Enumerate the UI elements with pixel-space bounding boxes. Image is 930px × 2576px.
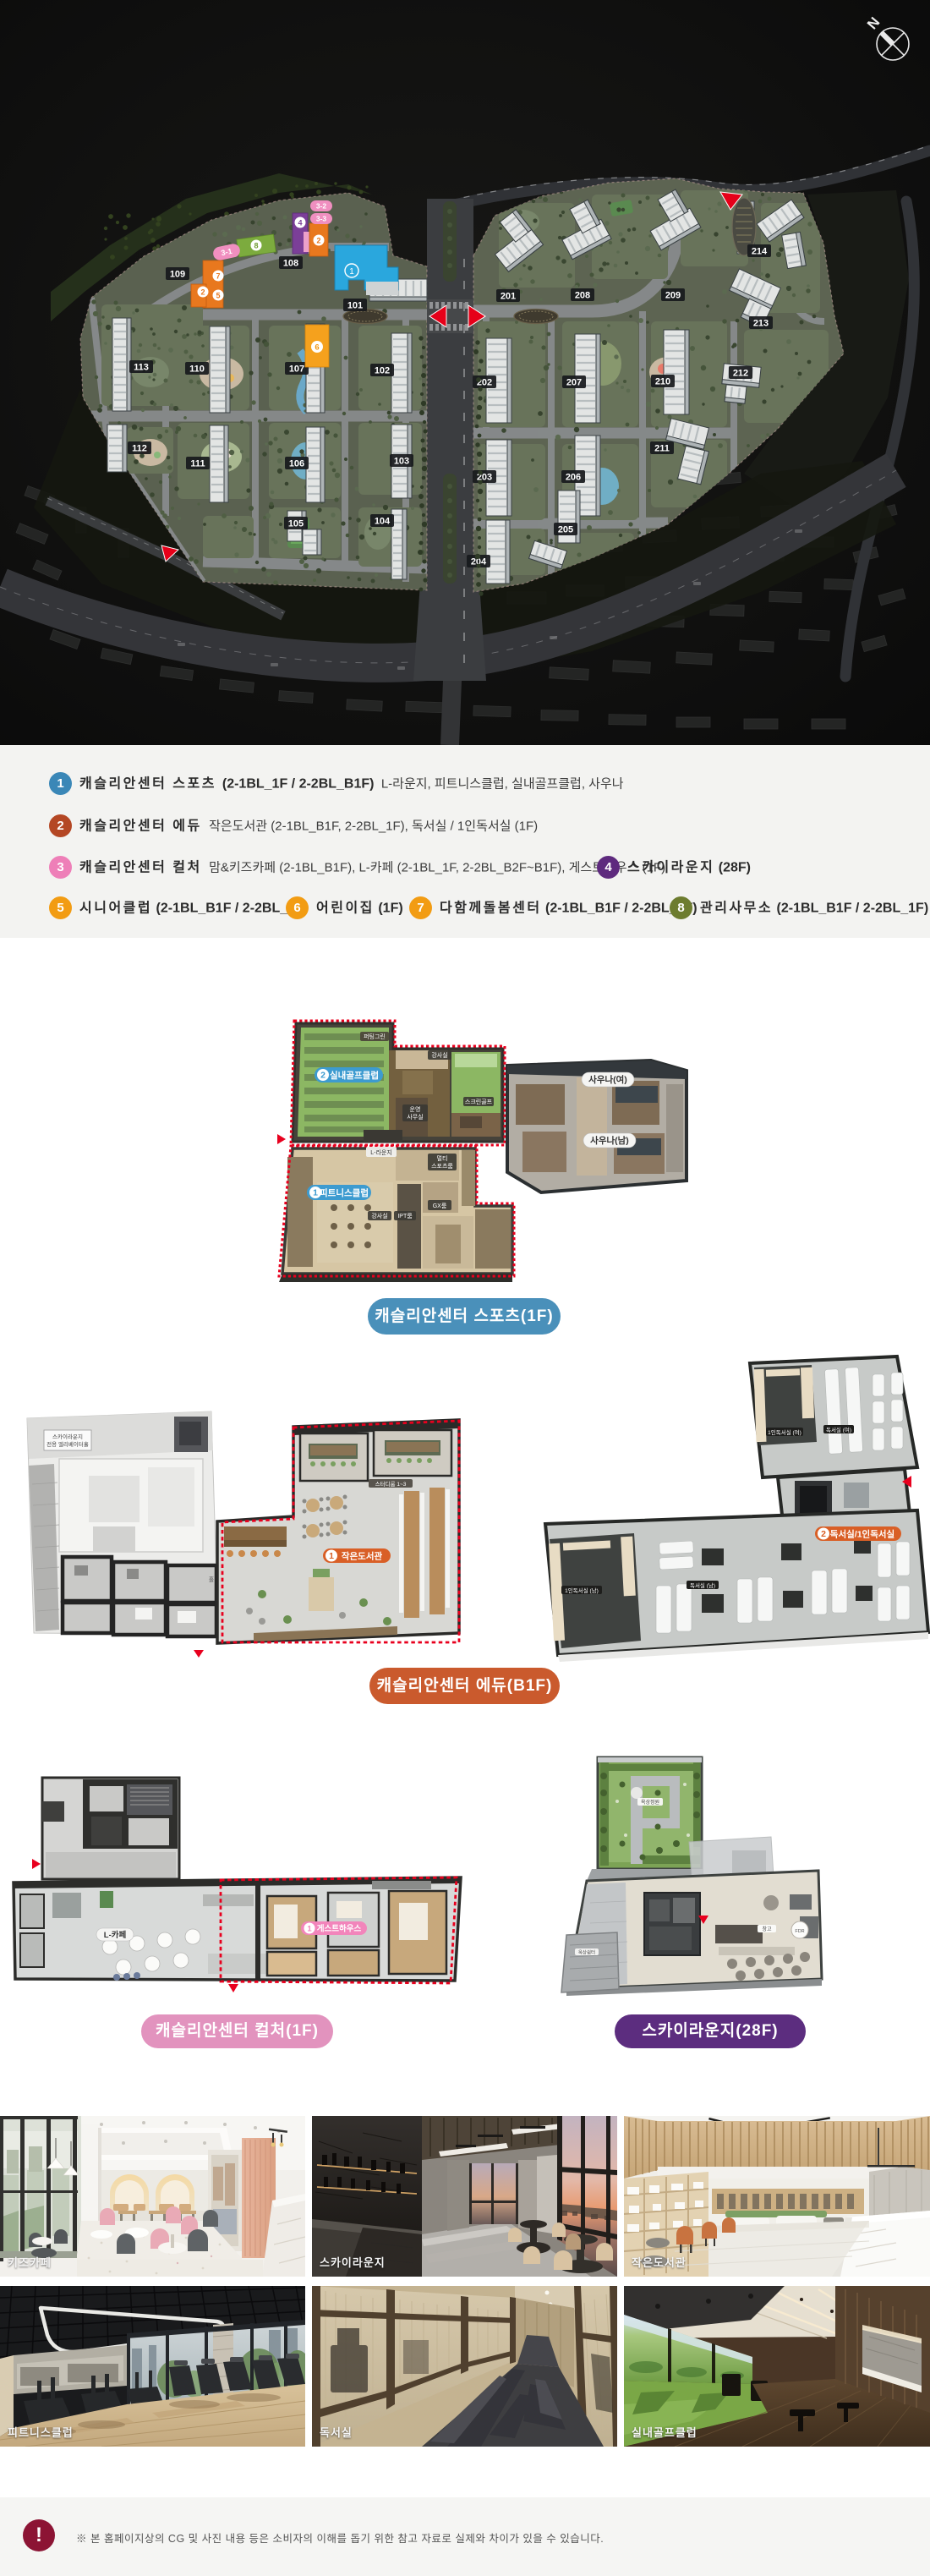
svg-text:210: 210 <box>655 377 670 387</box>
svg-text:1: 1 <box>349 267 354 277</box>
svg-text:독서실 (여): 독서실 (여) <box>826 1426 851 1433</box>
svg-text:211: 211 <box>654 444 670 454</box>
svg-text:103: 103 <box>394 457 409 467</box>
svg-text:옥상정원: 옥상정원 <box>641 1799 659 1806</box>
svg-text:113: 113 <box>134 363 149 373</box>
svg-text:IPT룸: IPT룸 <box>397 1213 413 1219</box>
svg-text:독서실 (남): 독서실 (남) <box>690 1581 715 1589</box>
svg-text:1인독서실 (여): 1인독서실 (여) <box>768 1428 801 1436</box>
svg-text:창고: 창고 <box>762 1926 772 1932</box>
svg-text:멀티: 멀티 <box>437 1154 448 1162</box>
svg-text:105: 105 <box>288 519 304 529</box>
svg-text:2: 2 <box>821 1529 826 1539</box>
svg-text:1: 1 <box>313 1188 318 1198</box>
svg-text:1인독서실 (남): 1인독서실 (남) <box>565 1587 599 1594</box>
svg-text:L-라운지: L-라운지 <box>370 1148 392 1156</box>
svg-text:104: 104 <box>375 517 391 527</box>
svg-text:106: 106 <box>289 459 304 469</box>
svg-text:2: 2 <box>316 237 320 245</box>
svg-text:102: 102 <box>375 366 390 376</box>
svg-text:7: 7 <box>216 272 220 281</box>
svg-text:피트니스클럽: 피트니스클럽 <box>320 1187 369 1198</box>
svg-text:스포츠룸: 스포츠룸 <box>431 1163 453 1170</box>
svg-text:101: 101 <box>347 301 363 311</box>
svg-text:FDR: FDR <box>795 1929 804 1934</box>
svg-text:게스트하우스: 게스트하우스 <box>317 1924 362 1934</box>
svg-text:강사실: 강사실 <box>431 1051 447 1059</box>
svg-text:사우나(남): 사우나(남) <box>590 1135 629 1146</box>
svg-text:107: 107 <box>289 364 304 375</box>
svg-text:1: 1 <box>307 1925 312 1934</box>
svg-text:205: 205 <box>558 525 573 535</box>
svg-text:212: 212 <box>733 369 748 379</box>
svg-text:4: 4 <box>298 219 302 227</box>
svg-text:사우나(여): 사우나(여) <box>588 1074 627 1085</box>
svg-text:3-2: 3-2 <box>316 202 327 211</box>
svg-text:209: 209 <box>665 291 681 301</box>
svg-text:스크린골프: 스크린골프 <box>465 1098 493 1105</box>
svg-text:GX룸: GX룸 <box>433 1203 447 1209</box>
svg-text:109: 109 <box>170 270 185 280</box>
svg-text:3-3: 3-3 <box>316 215 327 223</box>
svg-text:독서실/1인독서실: 독서실/1인독서실 <box>830 1529 894 1540</box>
svg-text:전용 엘리베이터홀: 전용 엘리베이터홀 <box>46 1440 89 1448</box>
svg-text:5: 5 <box>216 292 220 300</box>
svg-text:8: 8 <box>254 242 258 250</box>
svg-text:207: 207 <box>566 378 582 388</box>
svg-text:옥상쉼터: 옥상쉼터 <box>578 1949 595 1956</box>
svg-text:1: 1 <box>329 1551 334 1561</box>
svg-text:6: 6 <box>315 343 319 353</box>
svg-text:112: 112 <box>132 444 147 454</box>
svg-text:홀: 홀 <box>209 1576 215 1583</box>
svg-text:214: 214 <box>752 247 768 257</box>
svg-text:사무실: 사무실 <box>407 1113 423 1121</box>
svg-text:강사실: 강사실 <box>371 1212 387 1219</box>
svg-text:110: 110 <box>189 364 205 375</box>
svg-text:운영: 운영 <box>410 1105 421 1113</box>
svg-text:실내골프클럽: 실내골프클럽 <box>330 1070 379 1081</box>
svg-text:스터디룸 1~3: 스터디룸 1~3 <box>375 1480 407 1488</box>
svg-text:2: 2 <box>320 1071 325 1081</box>
svg-text:108: 108 <box>283 259 298 269</box>
svg-text:2: 2 <box>200 288 205 297</box>
svg-text:206: 206 <box>566 473 581 483</box>
svg-text:213: 213 <box>753 319 769 329</box>
svg-text:스카이라운지: 스카이라운지 <box>52 1433 83 1440</box>
svg-text:L-카페: L-카페 <box>104 1930 127 1940</box>
svg-text:작은도서관: 작은도서관 <box>342 1551 383 1562</box>
svg-text:퍼팅그린: 퍼팅그린 <box>364 1033 386 1040</box>
svg-text:208: 208 <box>575 291 590 301</box>
svg-text:111: 111 <box>190 459 205 469</box>
svg-text:201: 201 <box>501 292 516 302</box>
